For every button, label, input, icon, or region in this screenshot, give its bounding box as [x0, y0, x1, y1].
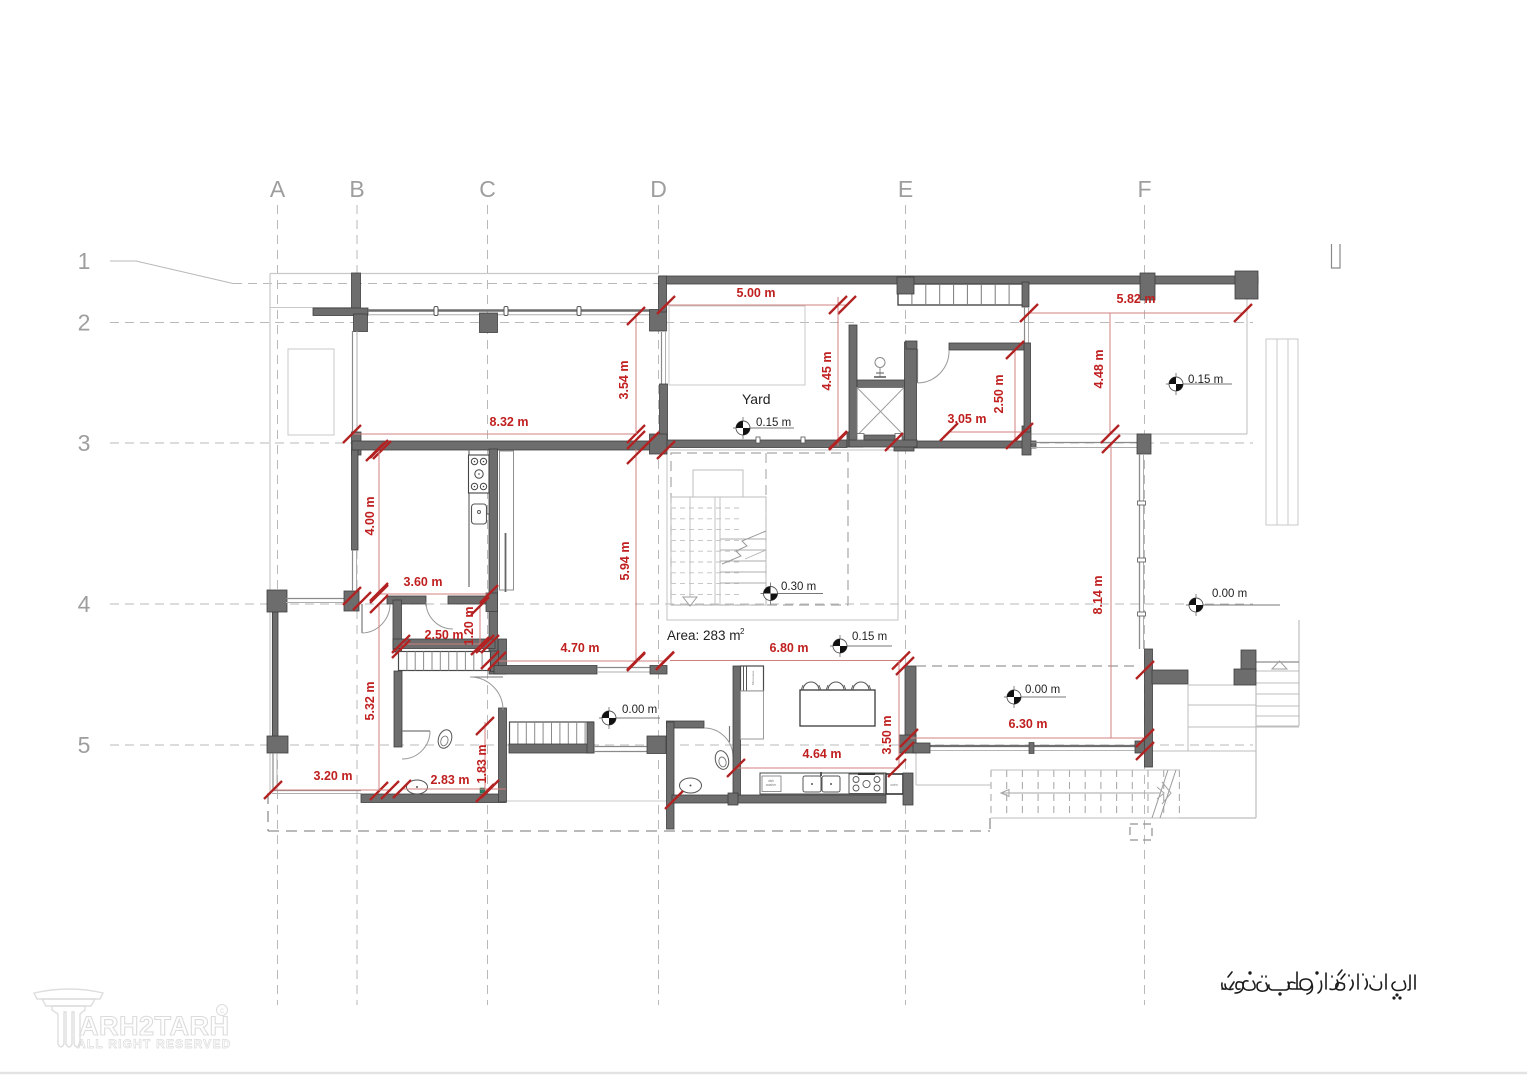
svg-text:2: 2 — [740, 627, 745, 636]
svg-text:2.50 m: 2.50 m — [992, 375, 1006, 414]
svg-text:0.15 m: 0.15 m — [756, 417, 791, 429]
svg-text:4.45 m: 4.45 m — [820, 352, 834, 391]
svg-text:D: D — [650, 176, 667, 202]
svg-text:0.15 m: 0.15 m — [852, 631, 887, 643]
svg-text:5.94 m: 5.94 m — [618, 542, 632, 581]
svg-text:A: A — [270, 176, 286, 202]
svg-text:5: 5 — [78, 732, 91, 758]
svg-text:3: 3 — [78, 430, 91, 456]
svg-text:Microwave: Microwave — [751, 670, 755, 685]
svg-text:1: 1 — [78, 248, 91, 274]
svg-text:washer: washer — [766, 783, 777, 787]
svg-text:3.60 m: 3.60 m — [404, 575, 443, 589]
svg-text:C: C — [479, 176, 496, 202]
svg-text:0.00 m: 0.00 m — [622, 704, 657, 716]
svg-text:3.05 m: 3.05 m — [948, 412, 987, 426]
svg-text:0.00 m: 0.00 m — [1025, 684, 1060, 696]
svg-text:6.30 m: 6.30 m — [1009, 717, 1048, 731]
svg-text:1.20 m: 1.20 m — [462, 607, 476, 646]
svg-text:5.32 m: 5.32 m — [363, 682, 377, 721]
svg-text:3.50 m: 3.50 m — [880, 716, 894, 755]
svg-text:1.83 m: 1.83 m — [475, 745, 489, 784]
svg-text:oven: oven — [890, 783, 897, 787]
svg-text:2: 2 — [78, 310, 91, 336]
svg-text:2.83 m: 2.83 m — [431, 773, 470, 787]
svg-text:3.20 m: 3.20 m — [314, 769, 353, 783]
svg-text:F: F — [1137, 176, 1151, 202]
svg-text:3.54 m: 3.54 m — [617, 361, 631, 400]
svg-text:2.50 m: 2.50 m — [425, 628, 464, 642]
svg-text:5.00 m: 5.00 m — [737, 286, 776, 300]
svg-text:0.30 m: 0.30 m — [781, 581, 816, 593]
svg-text:0.00 m: 0.00 m — [1212, 588, 1247, 600]
svg-text:8.32 m: 8.32 m — [490, 415, 529, 429]
svg-text:4.48 m: 4.48 m — [1092, 350, 1106, 389]
svg-text:6.80 m: 6.80 m — [770, 641, 809, 655]
svg-text:ALL RIGHT RESERVED: ALL RIGHT RESERVED — [77, 1037, 232, 1051]
svg-text:c: c — [220, 1006, 224, 1015]
svg-text:0.15 m: 0.15 m — [1188, 374, 1223, 386]
svg-text:Area: 283 m: Area: 283 m — [667, 628, 741, 643]
svg-text:4: 4 — [78, 591, 91, 617]
svg-text:B: B — [349, 176, 364, 202]
svg-text:Yard: Yard — [742, 391, 771, 407]
svg-text:4.00 m: 4.00 m — [363, 497, 377, 536]
svg-text:4.64 m: 4.64 m — [803, 747, 842, 761]
svg-text:E: E — [898, 176, 913, 202]
svg-text:8.14 m: 8.14 m — [1091, 576, 1105, 615]
svg-text:4.70 m: 4.70 m — [561, 641, 600, 655]
svg-text:5.82 m: 5.82 m — [1117, 292, 1156, 306]
